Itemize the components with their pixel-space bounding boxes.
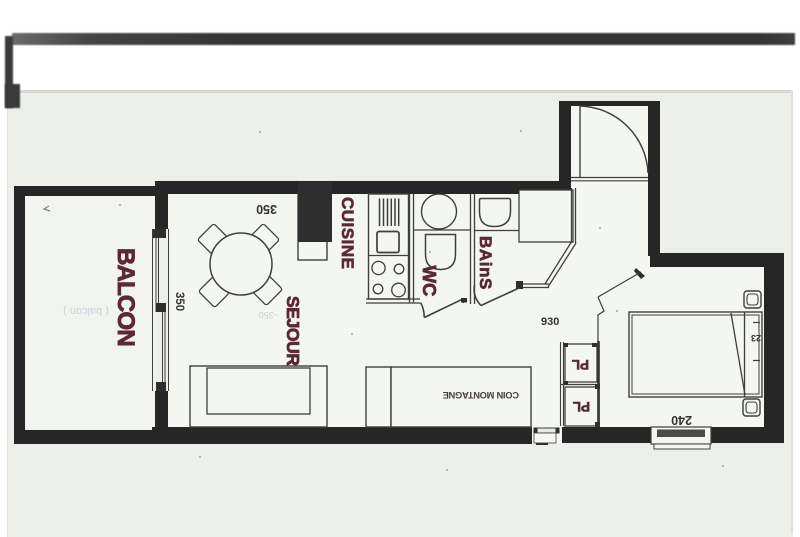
svg-text:BAinS: BAinS: [476, 236, 495, 290]
svg-text:( balcon ): ( balcon ): [63, 305, 109, 317]
svg-text:SEJOUR: SEJOUR: [283, 296, 303, 366]
svg-text:350: 350: [256, 202, 277, 216]
svg-text:350: 350: [173, 292, 185, 311]
svg-text:COIN MONTAGNE: COIN MONTAGNE: [443, 390, 519, 400]
svg-text:930: 930: [541, 316, 559, 328]
svg-text:CUISINE: CUISINE: [338, 197, 357, 269]
svg-text:PL: PL: [572, 357, 589, 372]
svg-text:PL: PL: [573, 399, 590, 414]
svg-text:~350: ~350: [259, 310, 279, 320]
svg-text:23: 23: [751, 333, 761, 343]
svg-text:240: 240: [671, 413, 692, 427]
svg-text:BALCON: BALCON: [112, 248, 139, 346]
svg-text:WC: WC: [419, 266, 440, 297]
